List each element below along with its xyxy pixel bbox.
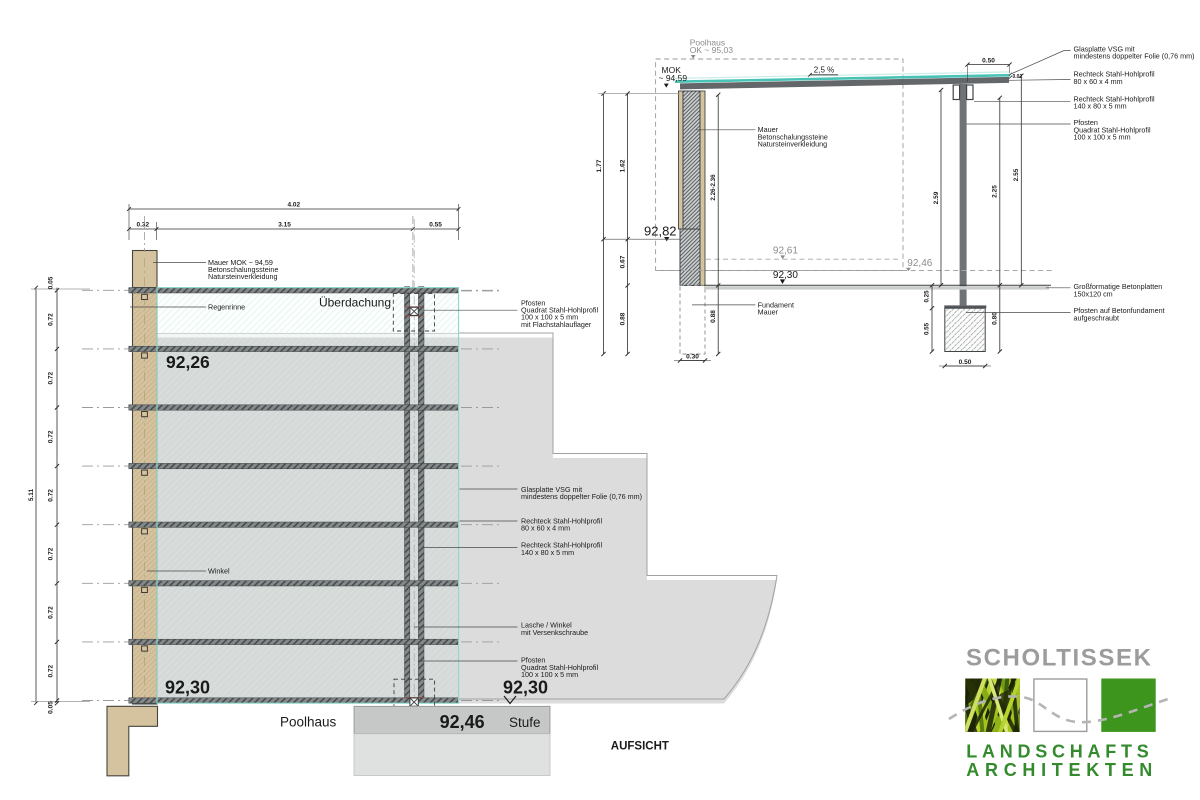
svg-text:0.72: 0.72 xyxy=(48,547,55,560)
svg-text:2.25: 2.25 xyxy=(991,185,998,198)
svg-text:0.67: 0.67 xyxy=(619,255,626,268)
svg-text:5.11: 5.11 xyxy=(28,488,35,501)
svg-text:0.72: 0.72 xyxy=(48,606,55,619)
svg-text:~ 94,59: ~ 94,59 xyxy=(659,73,688,83)
svg-text:0.72: 0.72 xyxy=(48,489,55,502)
svg-text:mit Versenkschraube: mit Versenkschraube xyxy=(521,628,588,637)
svg-text:2,5 %: 2,5 % xyxy=(814,66,834,75)
svg-text:0.30: 0.30 xyxy=(686,354,699,361)
svg-text:Mauer: Mauer xyxy=(758,308,779,317)
svg-text:Regenrinne: Regenrinne xyxy=(208,303,245,312)
svg-text:SCHOLTISSEK: SCHOLTISSEK xyxy=(966,645,1153,672)
svg-text:92,46: 92,46 xyxy=(440,712,485,732)
svg-text:0.05: 0.05 xyxy=(48,276,55,289)
svg-text:140 x 80 x 5 mm: 140 x 80 x 5 mm xyxy=(521,548,574,557)
svg-text:92,30: 92,30 xyxy=(503,678,548,698)
svg-text:2.59: 2.59 xyxy=(933,191,940,204)
svg-text:0.72: 0.72 xyxy=(48,430,55,443)
svg-text:0.72: 0.72 xyxy=(48,313,55,326)
svg-text:92,30: 92,30 xyxy=(165,678,210,698)
svg-text:mit Flachstahlauflager: mit Flachstahlauflager xyxy=(521,320,592,329)
svg-text:92,61: 92,61 xyxy=(773,245,798,256)
svg-text:80 x 60 x 4 mm: 80 x 60 x 4 mm xyxy=(1074,77,1123,86)
svg-text:0.50: 0.50 xyxy=(982,58,995,65)
svg-text:mindestens doppelter Folie (0,: mindestens doppelter Folie (0,76 mm) xyxy=(1074,52,1195,61)
svg-text:80 x 60 x 4 mm: 80 x 60 x 4 mm xyxy=(521,524,570,533)
svg-text:0.55: 0.55 xyxy=(924,322,931,335)
svg-text:0.02: 0.02 xyxy=(1013,74,1023,80)
svg-text:0.88: 0.88 xyxy=(710,310,717,323)
svg-text:aufgeschraubt: aufgeschraubt xyxy=(1074,313,1120,322)
svg-text:92,82: 92,82 xyxy=(644,224,677,239)
svg-text:2.26-2.36: 2.26-2.36 xyxy=(710,174,717,201)
svg-text:Poolhaus: Poolhaus xyxy=(280,715,337,730)
svg-text:0.25: 0.25 xyxy=(924,290,931,303)
svg-text:2.55: 2.55 xyxy=(1013,168,1020,181)
svg-text:LANDSCHAFTS: LANDSCHAFTS xyxy=(966,742,1153,762)
svg-text:92,30: 92,30 xyxy=(773,270,798,281)
svg-text:0.72: 0.72 xyxy=(48,371,55,384)
svg-text:mindestens doppelter Folie (0,: mindestens doppelter Folie (0,76 mm) xyxy=(521,492,642,501)
svg-text:Natursteinverkleidung: Natursteinverkleidung xyxy=(208,272,278,281)
svg-text:92,26: 92,26 xyxy=(166,352,210,372)
svg-text:3.15: 3.15 xyxy=(278,222,291,229)
svg-text:100 x 100 x 5 mm: 100 x 100 x 5 mm xyxy=(1074,133,1131,142)
svg-text:Überdachung: Überdachung xyxy=(319,296,391,310)
svg-text:Stufe: Stufe xyxy=(509,715,541,730)
svg-text:Natursteinverkleidung: Natursteinverkleidung xyxy=(758,140,828,149)
svg-text:4.02: 4.02 xyxy=(287,202,300,209)
svg-text:0.50: 0.50 xyxy=(959,359,972,366)
svg-text:100 x 100 x 5 mm: 100 x 100 x 5 mm xyxy=(521,670,578,679)
svg-text:0.80: 0.80 xyxy=(991,312,998,325)
svg-text:ARCHITEKTEN: ARCHITEKTEN xyxy=(966,760,1158,780)
svg-text:OK ~ 95,03: OK ~ 95,03 xyxy=(690,45,734,55)
svg-text:1.62: 1.62 xyxy=(619,159,626,172)
svg-text:0.05: 0.05 xyxy=(48,701,55,714)
svg-text:140 x 80 x 5 mm: 140 x 80 x 5 mm xyxy=(1074,102,1127,111)
svg-text:0.32: 0.32 xyxy=(136,222,149,229)
svg-text:Winkel: Winkel xyxy=(208,567,230,576)
svg-text:92,46: 92,46 xyxy=(907,258,932,269)
svg-text:0.72: 0.72 xyxy=(48,664,55,677)
svg-text:150x120 cm: 150x120 cm xyxy=(1074,289,1113,298)
svg-text:AUFSICHT: AUFSICHT xyxy=(611,741,669,753)
svg-text:0.55: 0.55 xyxy=(429,222,442,229)
svg-text:1.77: 1.77 xyxy=(596,159,603,172)
svg-text:0.88: 0.88 xyxy=(619,312,626,325)
